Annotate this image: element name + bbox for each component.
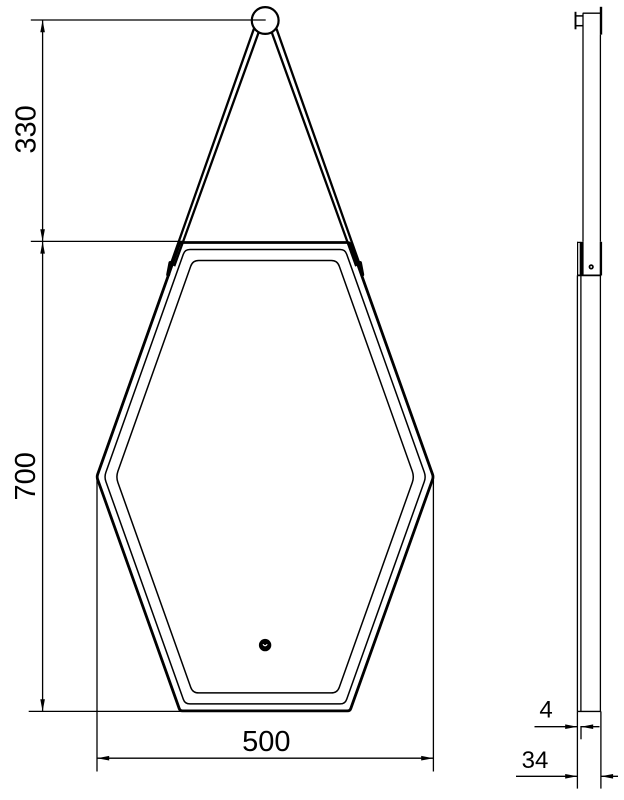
svg-text:700: 700 [10, 452, 42, 500]
svg-text:4: 4 [539, 697, 552, 724]
svg-text:330: 330 [11, 105, 43, 153]
svg-text:500: 500 [242, 726, 290, 758]
svg-text:34: 34 [522, 747, 549, 774]
